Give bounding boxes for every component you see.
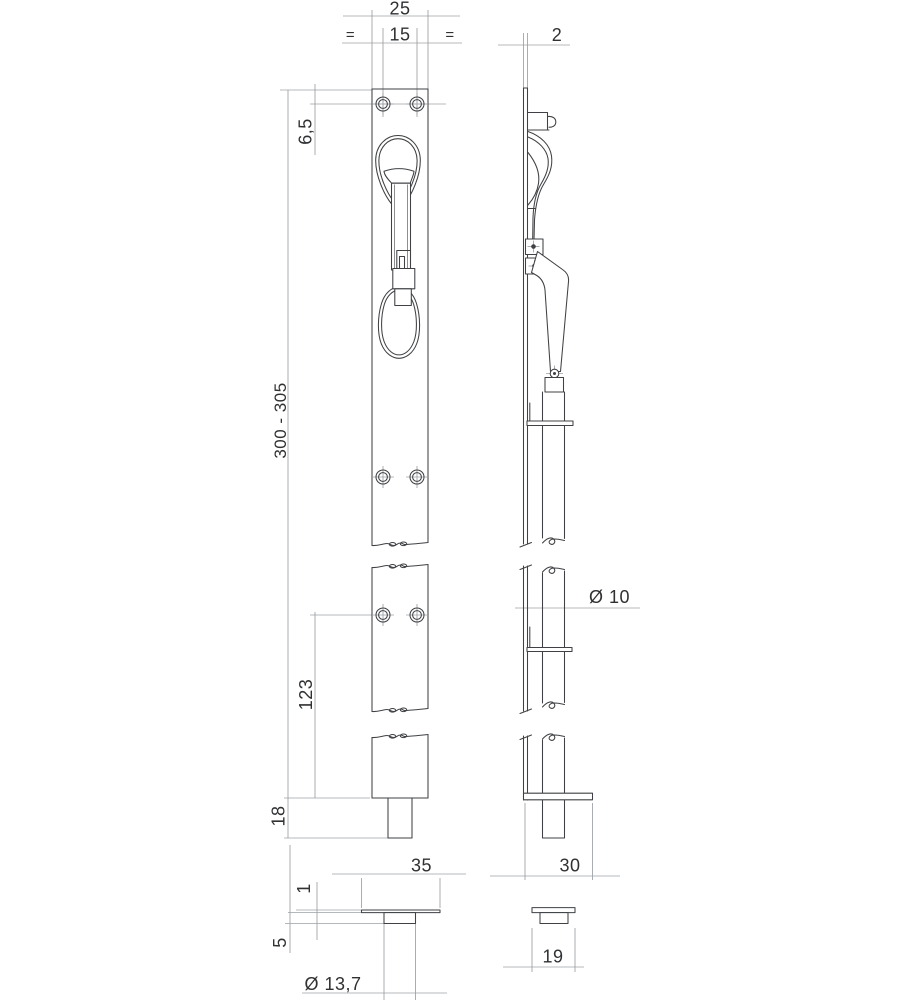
screw-hole xyxy=(406,604,428,626)
side-recess-housing xyxy=(528,132,552,241)
faceplate-section-bottom xyxy=(372,734,428,798)
dim-socket-plate-thickness: 1 xyxy=(294,883,314,894)
dim-hole-spacing: 15 xyxy=(389,25,410,45)
screw-hole xyxy=(372,466,394,488)
screw-hole xyxy=(406,466,428,488)
dim-equal-left: = xyxy=(346,27,355,44)
side-view: 2 Ø 10 30 xyxy=(490,25,640,880)
side-knob xyxy=(528,113,556,131)
dim-overall-length: 300 - 305 xyxy=(271,382,290,458)
guide-body xyxy=(540,913,568,924)
dim-equal-right: = xyxy=(445,27,454,44)
lever-arm-side xyxy=(532,252,569,393)
dim-rod-diameter: Ø 10 xyxy=(589,587,630,607)
keeper-flange xyxy=(524,793,593,800)
screw-hole xyxy=(372,93,394,115)
bolt-pin xyxy=(388,798,412,838)
dim-guide-width: 19 xyxy=(542,947,563,967)
guide-bracket-top xyxy=(527,403,573,426)
screw-hole xyxy=(372,604,394,626)
dim-socket-hole-diameter: Ø 13,7 xyxy=(304,974,361,994)
front-view: 25 = 15 = 6,5 300 - 305 123 18 xyxy=(269,0,463,838)
bottom-view-guide: 19 xyxy=(503,908,584,972)
side-faceplate-top xyxy=(520,88,532,547)
rod-bottom xyxy=(543,734,565,838)
dim-socket-collar-height: 5 xyxy=(270,937,290,948)
dim-keeper-depth: 30 xyxy=(559,856,580,876)
bottom-view-socket: 35 1 5 Ø 13,7 xyxy=(270,845,466,1000)
dim-lower-hole-offset: 123 xyxy=(296,679,316,711)
drawing-canvas: 25 = 15 = 6,5 300 - 305 123 18 xyxy=(0,0,903,1000)
socket-collar xyxy=(384,913,416,924)
guide-bracket-middle xyxy=(527,627,572,652)
side-faceplate-bottom xyxy=(520,735,532,800)
rod-top xyxy=(543,392,565,544)
dim-socket-plate-width: 35 xyxy=(411,856,432,876)
guide-flange xyxy=(532,908,575,913)
dim-faceplate-thickness: 2 xyxy=(552,25,563,45)
lever-handle xyxy=(384,169,415,306)
dim-top-edge-offset: 6,5 xyxy=(296,118,316,145)
screw-hole xyxy=(406,93,428,115)
flush-bolt-technical-drawing: 25 = 15 = 6,5 300 - 305 123 18 xyxy=(0,0,903,1000)
dim-plate-width: 25 xyxy=(389,0,410,19)
dim-bolt-throw: 18 xyxy=(269,805,289,826)
rod-middle xyxy=(543,567,565,708)
faceplate-section-middle xyxy=(372,564,428,712)
